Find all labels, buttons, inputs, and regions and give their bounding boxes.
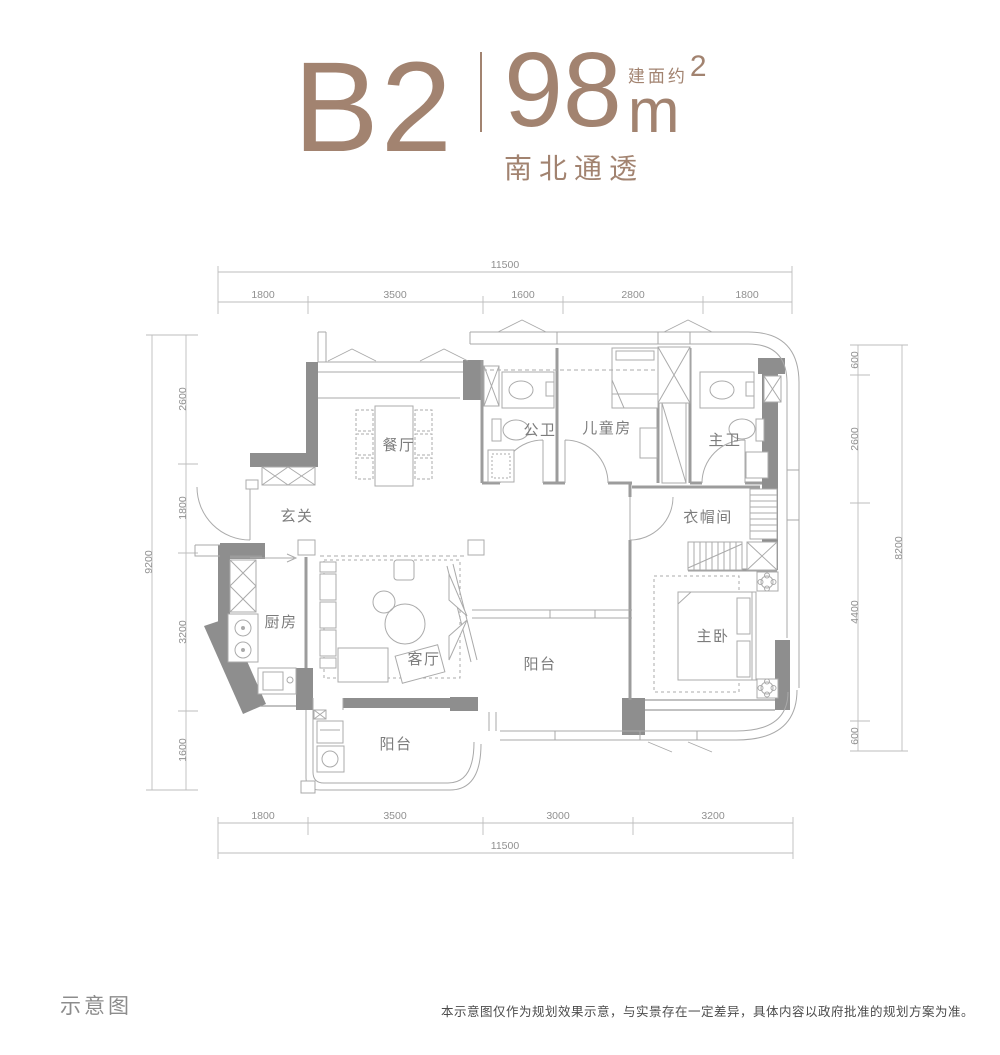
room-label-balcony-west: 阳台 <box>379 736 412 753</box>
dim-top-seg: 2800 <box>621 289 645 301</box>
dim-left-total: 9200 <box>143 550 155 574</box>
dim-bottom-total: 11500 <box>491 840 520 852</box>
dim-left-seg: 2600 <box>177 387 189 411</box>
disclaimer-text: 本示意图仅作为规划效果示意，与实景存在一定差异，具体内容以政府批准的规划方案为准… <box>441 1001 974 1020</box>
dim-right-seg: 600 <box>849 727 861 745</box>
room-label-closet: 衣帽间 <box>683 509 733 526</box>
room-label-public-bath: 公卫 <box>523 422 556 439</box>
dim-bottom-seg: 3000 <box>546 810 570 822</box>
dim-left-seg: 3200 <box>177 620 189 644</box>
dim-top-total: 11500 <box>491 259 520 271</box>
dim-left-seg: 1800 <box>177 496 189 520</box>
room-label-kids-room: 儿童房 <box>582 419 632 437</box>
laundry-units <box>314 710 344 772</box>
dim-top-seg: 1600 <box>511 289 535 301</box>
kids-door-arc <box>565 440 608 483</box>
room-label-master-bath: 主卫 <box>708 432 741 449</box>
living-room-furniture <box>320 560 467 683</box>
dim-left-seg: 1600 <box>177 738 189 762</box>
room-label-living: 客厅 <box>407 651 440 668</box>
dim-right-seg: 4400 <box>849 600 861 624</box>
shoe-cabinet <box>262 467 315 485</box>
dim-right-seg: 2600 <box>849 427 861 451</box>
room-label-balcony-south: 阳台 <box>523 656 556 673</box>
dim-right-seg: 600 <box>849 351 861 369</box>
room-label-master-bedroom: 主卧 <box>696 628 729 645</box>
master-suite-door-arc <box>630 497 673 540</box>
kids-bed <box>612 347 690 483</box>
column <box>468 540 484 555</box>
room-label-dining: 餐厅 <box>382 437 415 454</box>
dim-right-total: 8200 <box>893 536 905 560</box>
dim-top-seg: 1800 <box>251 289 275 301</box>
closet-wardrobes <box>688 489 777 570</box>
room-label-entry: 玄关 <box>280 508 313 525</box>
entry-door-arc <box>197 487 250 540</box>
column <box>298 540 315 555</box>
dim-top-seg: 3500 <box>383 289 407 301</box>
dim-bottom-seg: 1800 <box>251 810 275 822</box>
dim-bottom-seg: 3200 <box>701 810 725 822</box>
dim-bottom-seg: 3500 <box>383 810 407 822</box>
schematic-caption: 示意图 <box>60 990 132 1020</box>
floor-plan: 11500 1800 3500 1600 2800 1800 1800 3500… <box>0 0 1000 1055</box>
dim-top-seg: 1800 <box>735 289 759 301</box>
entry-door-hinge <box>246 480 258 489</box>
room-label-kitchen: 厨房 <box>264 614 297 631</box>
